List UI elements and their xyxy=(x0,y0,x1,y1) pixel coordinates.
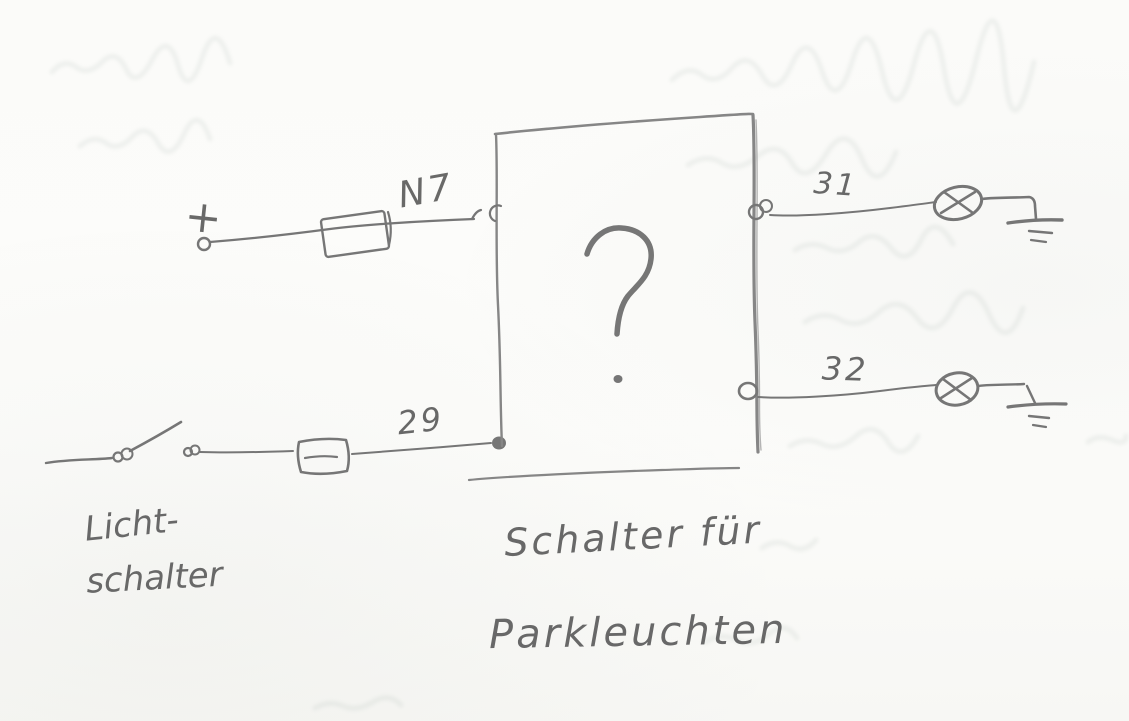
bleed-mark xyxy=(762,540,816,549)
switch-lever xyxy=(130,422,181,451)
switch-caption-line1: Licht- xyxy=(83,500,181,550)
connector-inner-dash xyxy=(305,456,337,458)
terminal-label-29: 29 xyxy=(395,400,445,443)
ground-bar-1 xyxy=(1008,404,1066,407)
bleed-mark xyxy=(795,227,953,256)
supply-branch: + N7 xyxy=(182,166,481,257)
lamp-icon xyxy=(934,370,981,409)
box-caption-line1: Schalter für xyxy=(503,508,763,565)
wire-31 xyxy=(770,202,936,216)
question-mark-text: ? xyxy=(580,202,660,376)
fuse-outline xyxy=(321,211,390,258)
box-left-edge xyxy=(496,134,502,446)
bleed-mark xyxy=(790,429,918,451)
supply-wire xyxy=(210,219,474,242)
light-switch-branch: 29 Licht- schalter xyxy=(46,400,506,602)
output-branch-32: 32 xyxy=(739,349,1066,427)
scanned-sketch-page: + N7 29 xyxy=(0,0,1129,721)
box-top-edge xyxy=(495,114,753,134)
junction-dot xyxy=(492,437,506,450)
lamp-icon xyxy=(931,182,985,225)
question-mark-dot xyxy=(614,375,623,383)
bleed-mark xyxy=(52,38,230,81)
terminal-label-31: 31 xyxy=(813,166,860,204)
lamp-cross xyxy=(941,378,972,400)
bleed-mark xyxy=(805,292,1023,332)
ground-icon xyxy=(1008,220,1062,242)
bleed-mark xyxy=(688,139,896,177)
output-terminal-31-loop xyxy=(760,200,772,212)
bleed-mark xyxy=(672,21,1034,111)
box-bottom-edge xyxy=(469,468,739,480)
terminal-label-32: 32 xyxy=(821,349,869,389)
bleed-mark xyxy=(315,698,401,709)
terminal-label-n7: N7 xyxy=(395,166,457,216)
switch-wire-stub xyxy=(46,458,112,463)
light-switch-symbol xyxy=(114,422,200,462)
ground-bar-3 xyxy=(1031,240,1046,242)
wire-to-ground-top xyxy=(982,197,1036,219)
bleed-mark xyxy=(1088,436,1126,442)
switch-wire xyxy=(200,451,293,452)
inline-connector-symbol xyxy=(298,439,349,474)
wire-29 xyxy=(352,443,491,454)
wire-to-ground-bottom xyxy=(978,384,1035,403)
bleed-mark xyxy=(80,120,210,151)
ground-bar-1 xyxy=(1008,220,1062,223)
circuit-sketch: + N7 29 xyxy=(0,0,1129,721)
ground-bar-2 xyxy=(1029,231,1052,233)
box-caption-line2: Parkleuchten xyxy=(489,607,788,658)
output-terminal-32 xyxy=(739,383,757,399)
switch-caption-line2: schalter xyxy=(85,555,225,602)
question-mark: ? xyxy=(580,202,660,383)
supply-wire-end-hook xyxy=(472,210,481,219)
ground-bar-3 xyxy=(1033,425,1046,427)
lamp-cross xyxy=(941,192,975,213)
output-branch-31: 31 xyxy=(749,166,1062,242)
fuse-symbol xyxy=(321,211,391,258)
ground-bar-2 xyxy=(1029,416,1049,418)
plus-sign-label: + xyxy=(182,190,224,245)
ground-icon xyxy=(1008,404,1066,427)
